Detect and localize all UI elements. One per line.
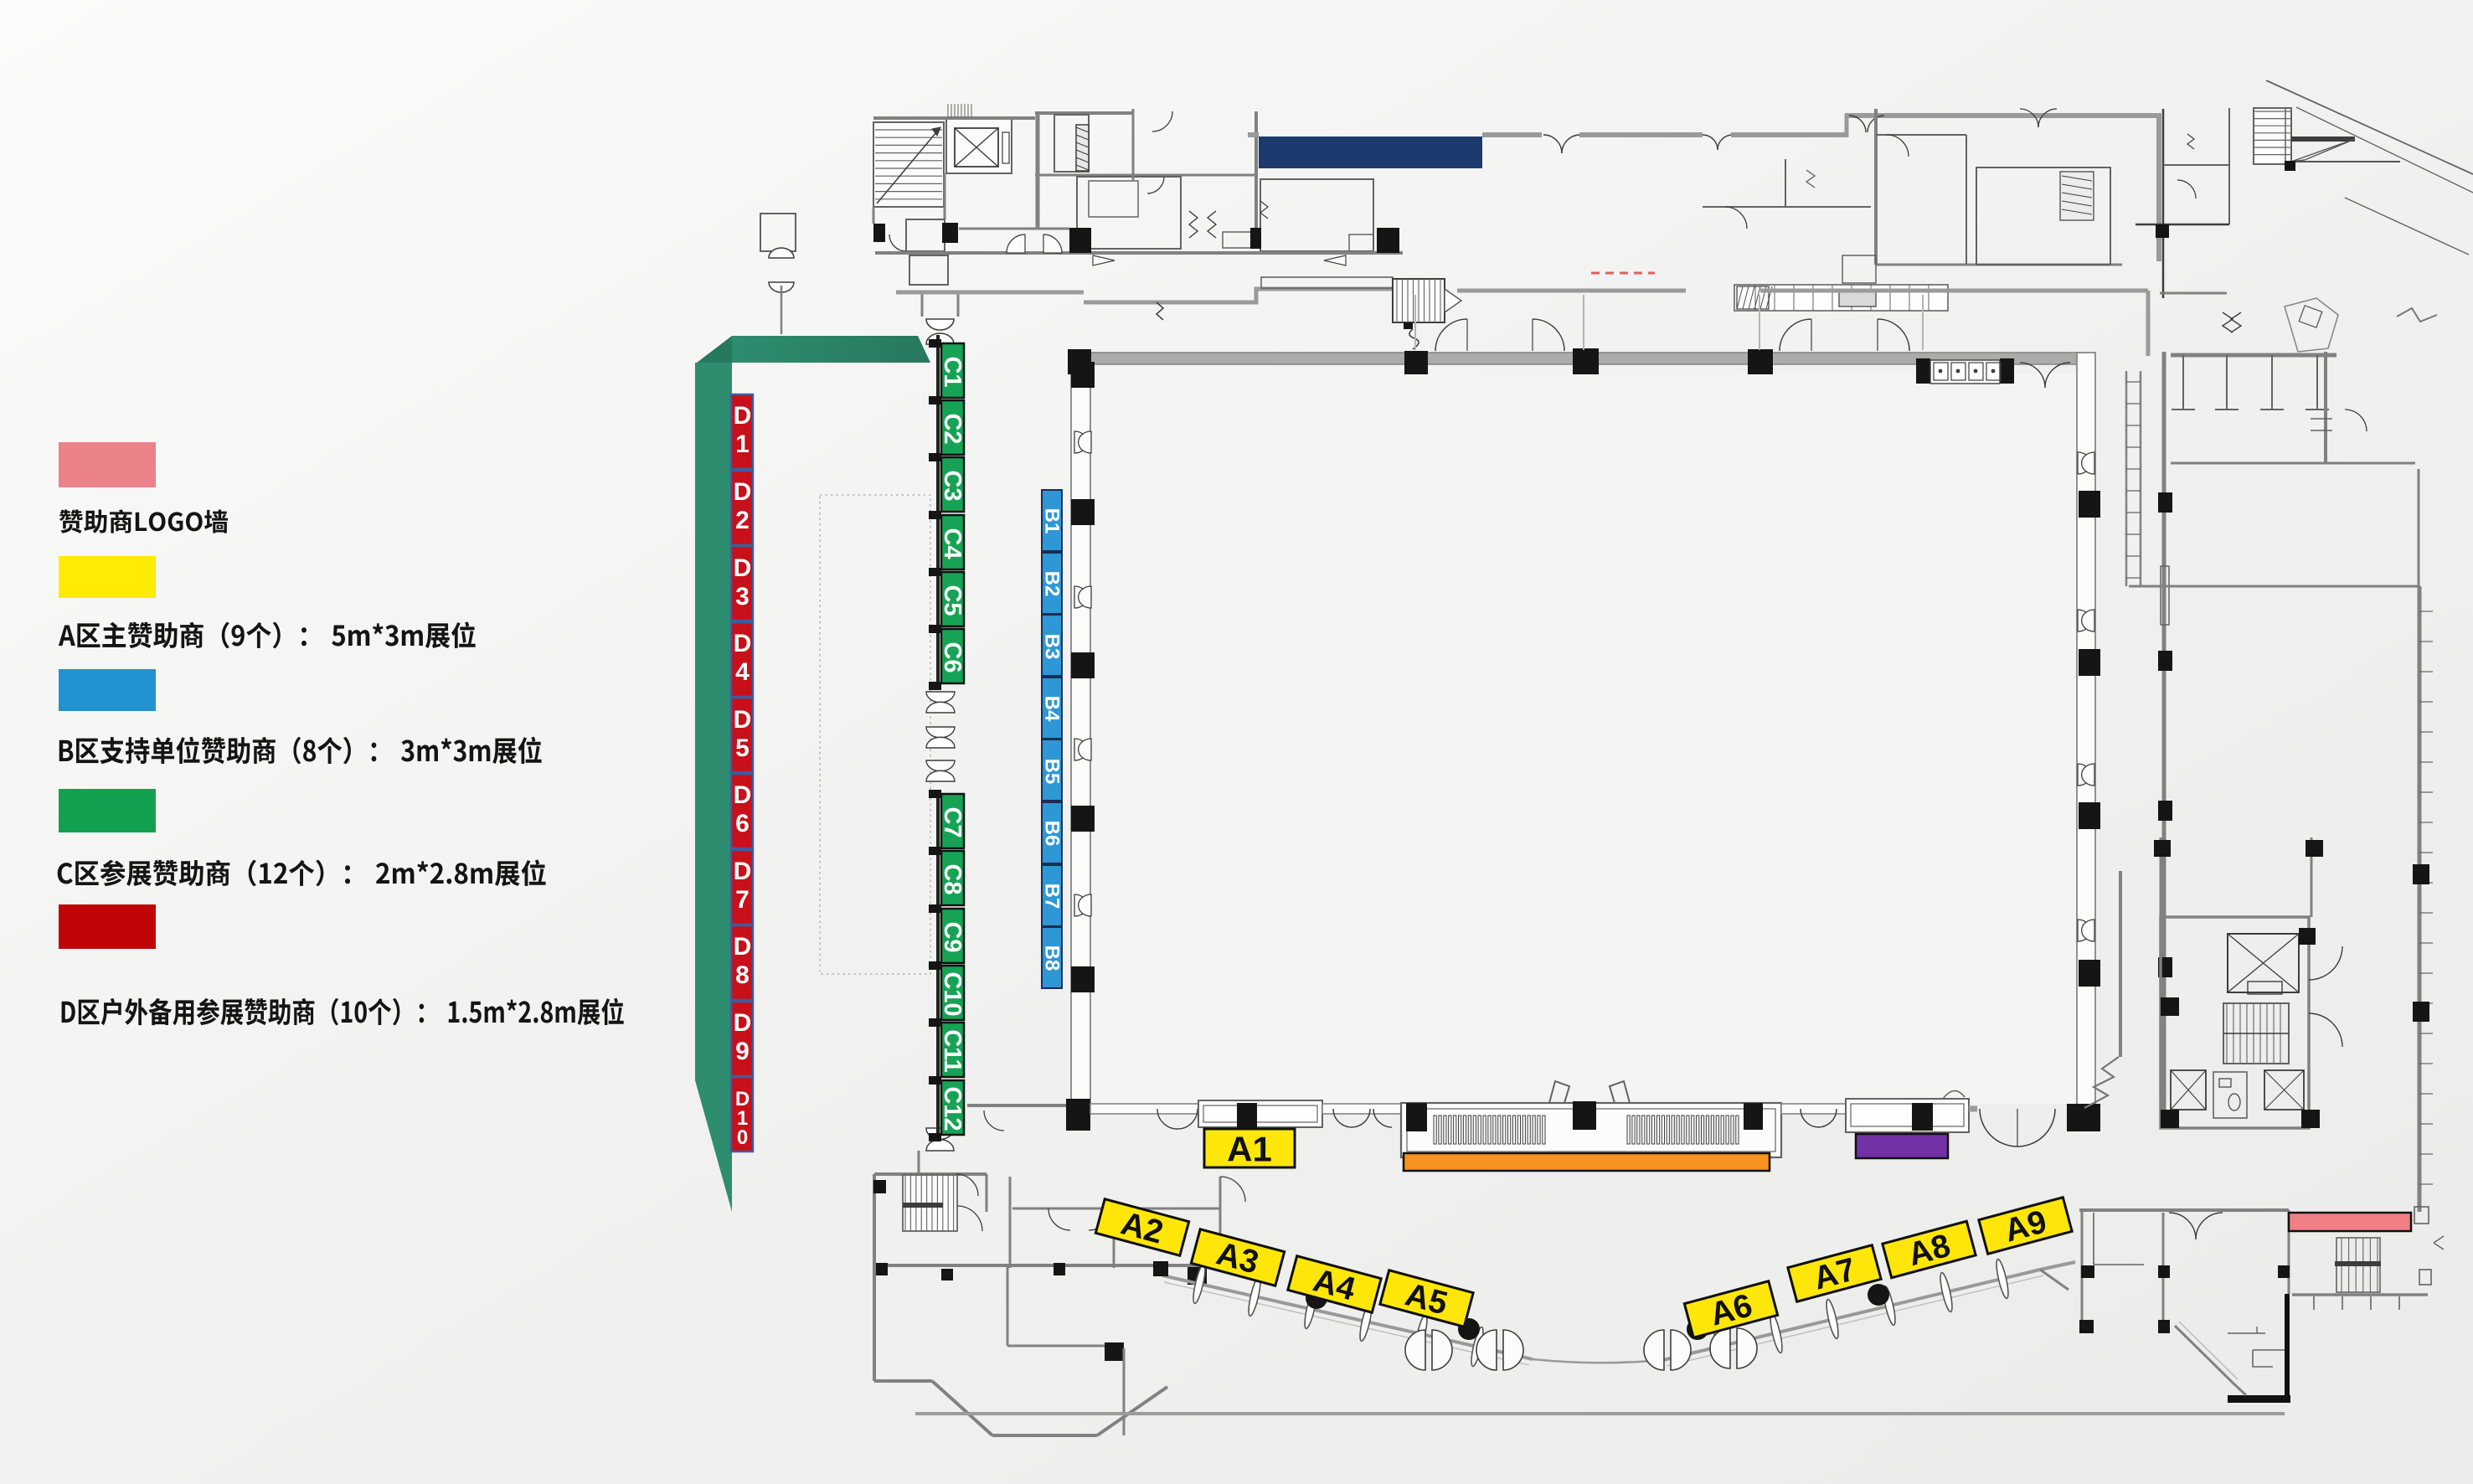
svg-text:D: D: [734, 630, 752, 657]
svg-text:C9: C9: [939, 921, 966, 952]
svg-text:0: 0: [737, 1126, 748, 1149]
svg-text:D: D: [734, 554, 752, 582]
svg-text:3: 3: [735, 583, 750, 611]
svg-text:C8: C8: [939, 863, 966, 894]
svg-text:A1: A1: [1227, 1130, 1272, 1169]
svg-text:5: 5: [735, 734, 750, 762]
svg-text:C7: C7: [939, 806, 966, 837]
svg-text:D: D: [734, 781, 752, 809]
svg-text:D: D: [734, 402, 752, 430]
svg-text:B6: B6: [1041, 821, 1064, 847]
svg-text:6: 6: [735, 810, 750, 837]
svg-text:D: D: [734, 706, 752, 734]
svg-text:D: D: [734, 1009, 752, 1037]
svg-text:8: 8: [735, 961, 750, 989]
svg-text:7: 7: [735, 886, 750, 914]
svg-text:D: D: [734, 858, 752, 885]
svg-text:C4: C4: [939, 528, 966, 559]
svg-text:B1: B1: [1041, 508, 1064, 534]
svg-text:C3: C3: [939, 470, 966, 501]
svg-text:9: 9: [735, 1038, 750, 1065]
svg-text:B2: B2: [1041, 571, 1064, 597]
svg-text:C10: C10: [939, 971, 966, 1016]
svg-text:B5: B5: [1041, 759, 1064, 785]
svg-text:C12: C12: [939, 1086, 966, 1131]
svg-text:1: 1: [735, 430, 750, 458]
svg-text:B8: B8: [1041, 946, 1064, 971]
svg-text:C2: C2: [939, 413, 966, 444]
svg-text:B7: B7: [1041, 884, 1064, 909]
svg-text:4: 4: [735, 658, 750, 686]
svg-text:2: 2: [735, 507, 750, 534]
svg-text:D: D: [734, 933, 752, 961]
svg-text:B3: B3: [1041, 634, 1064, 660]
svg-text:C5: C5: [939, 585, 966, 616]
svg-text:B4: B4: [1041, 696, 1064, 722]
svg-text:C6: C6: [939, 642, 966, 672]
svg-text:C11: C11: [939, 1029, 966, 1073]
svg-text:D: D: [734, 478, 752, 506]
svg-text:C1: C1: [939, 356, 966, 387]
